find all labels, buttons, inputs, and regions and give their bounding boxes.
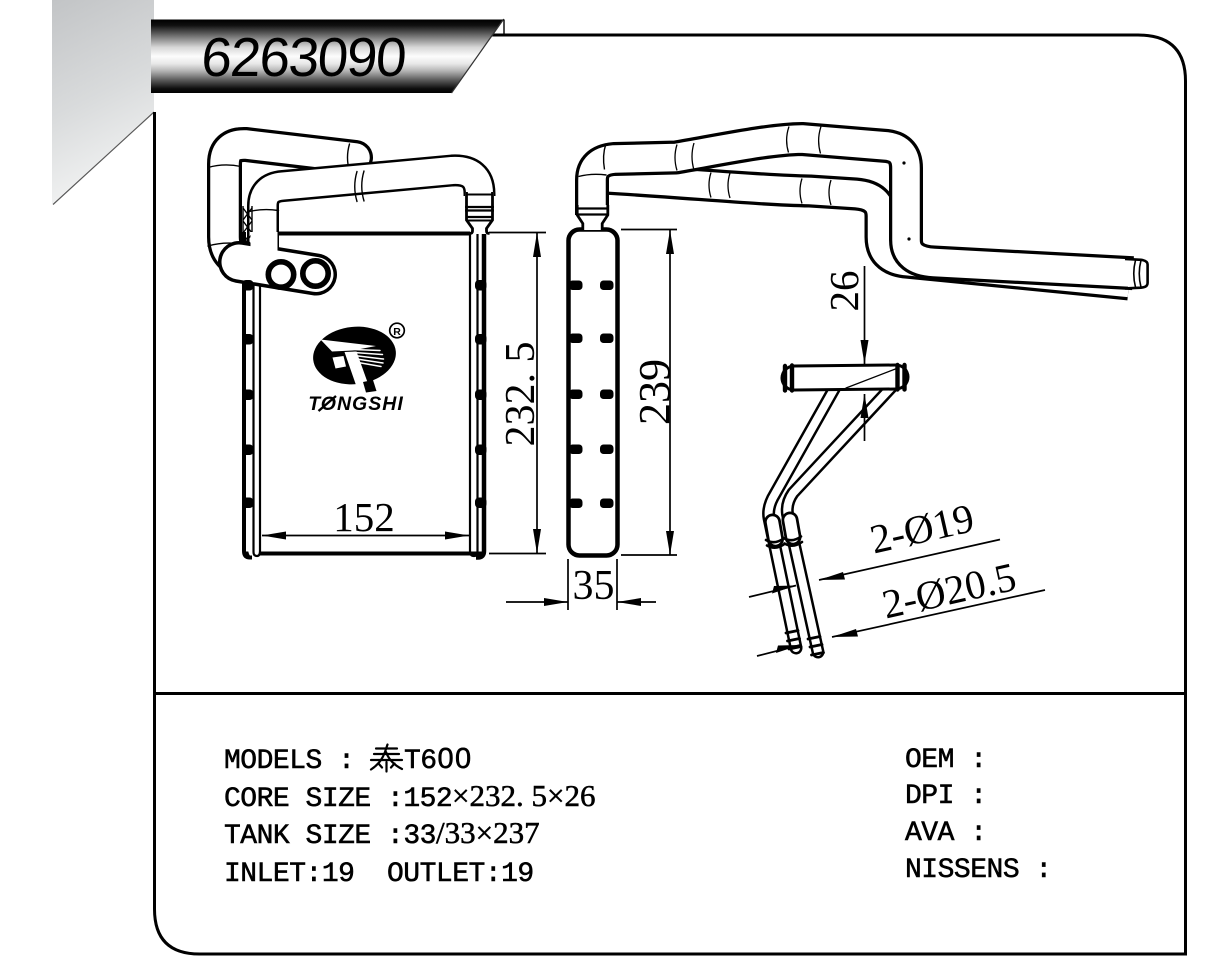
svg-text:35: 35 (573, 563, 615, 609)
svg-text:DPI :: DPI : (905, 781, 987, 812)
svg-text:CORE SIZE :152: CORE SIZE :152 (224, 784, 452, 815)
svg-text:/33×237: /33×237 (436, 815, 540, 850)
svg-text:26: 26 (821, 271, 867, 312)
svg-text:232. 5: 232. 5 (498, 342, 544, 447)
svg-text:239: 239 (630, 359, 679, 425)
svg-text:MODELS :: MODELS : (224, 746, 354, 777)
svg-text:6263090: 6263090 (199, 26, 407, 88)
svg-text:×232. 5×26: ×232. 5×26 (452, 778, 595, 813)
svg-text:INLET:19: INLET:19 (224, 859, 354, 890)
svg-text:152: 152 (333, 494, 395, 540)
svg-text:NISSENS :: NISSENS : (905, 855, 1052, 886)
svg-text:TONGSHI: TONGSHI (308, 393, 403, 415)
svg-text:R: R (393, 326, 401, 338)
svg-text:TANK SIZE :33: TANK SIZE :33 (224, 821, 436, 852)
svg-text:T6: T6 (404, 746, 437, 777)
svg-text:OEM :: OEM : (905, 745, 987, 776)
svg-text:OUTLET:19: OUTLET:19 (387, 859, 534, 890)
svg-text:00: 00 (438, 743, 473, 775)
svg-text:AVA :: AVA : (905, 818, 987, 849)
